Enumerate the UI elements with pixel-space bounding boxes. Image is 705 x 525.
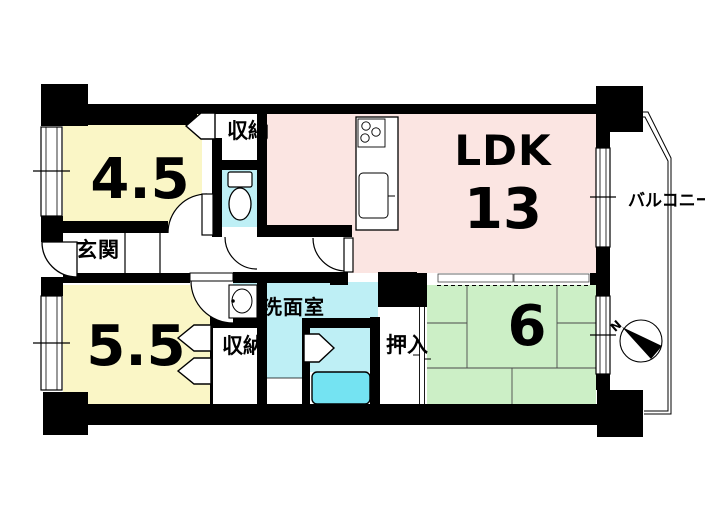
compass-icon [620, 320, 662, 362]
entrance-label: 玄関 [76, 234, 120, 264]
entrance-step-lines [125, 233, 160, 273]
balcony-label: バルコニー [628, 192, 646, 211]
bathtub-icon [312, 372, 370, 404]
closet-bottom-label: 収納 [222, 336, 244, 357]
pillar-top-right [596, 86, 643, 132]
room55-door-leaf [190, 273, 233, 281]
balcony-outline [641, 112, 671, 414]
floorplan-canvas: 4.5 5.5 LDK 13 6 玄関 洗面室 収納 収納 押入 バルコニー N [0, 0, 705, 525]
ldk-size-label: 13 [438, 176, 568, 243]
ldk-tatami-opening [437, 273, 590, 286]
ldk-door-leaf [344, 238, 353, 272]
closet-top-label: 収納 [227, 121, 249, 142]
toilet-icon [228, 172, 252, 220]
washroom-floor-strip [267, 322, 302, 378]
washbasin-icon [229, 285, 257, 318]
room45-door-leaf [202, 194, 213, 235]
stove-icon [358, 119, 385, 147]
room-55-label: 5.5 [80, 313, 192, 380]
tatami-6-label: 6 [495, 293, 559, 360]
entrance-door-swing [42, 242, 77, 277]
room-45-label: 4.5 [85, 146, 195, 213]
ldk-label: LDK [438, 128, 568, 174]
washroom-label: 洗面室 [262, 291, 325, 320]
kitchen-counter [356, 117, 398, 230]
toilet-doorway [222, 227, 257, 237]
oshiire-header-wall [378, 272, 417, 307]
oshiire-label: 押入 [386, 335, 408, 356]
pillar-bottom-right [597, 390, 643, 437]
pillar-bottom-left [43, 392, 88, 435]
